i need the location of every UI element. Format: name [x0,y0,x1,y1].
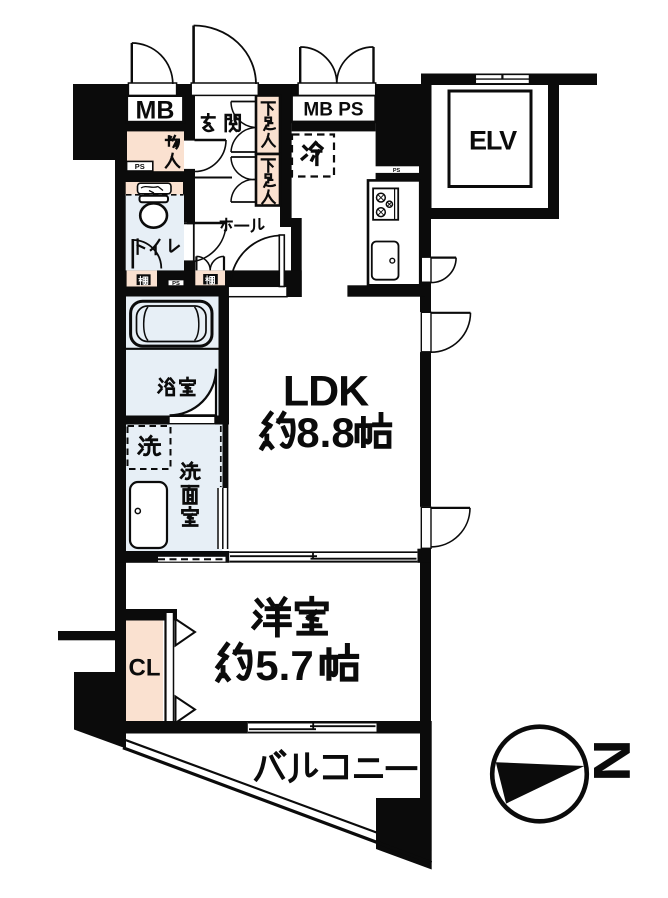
svg-text:N: N [583,739,641,782]
svg-text:5.7: 5.7 [255,642,313,689]
svg-text:ELV: ELV [469,126,517,156]
svg-text:PS: PS [393,168,401,174]
svg-text:MB: MB [136,96,175,124]
svg-text:PS: PS [135,162,145,171]
svg-text:PS: PS [172,281,180,287]
svg-text:8.8: 8.8 [296,409,354,456]
svg-text:CL: CL [129,655,161,682]
svg-text:MB PS: MB PS [303,100,363,121]
